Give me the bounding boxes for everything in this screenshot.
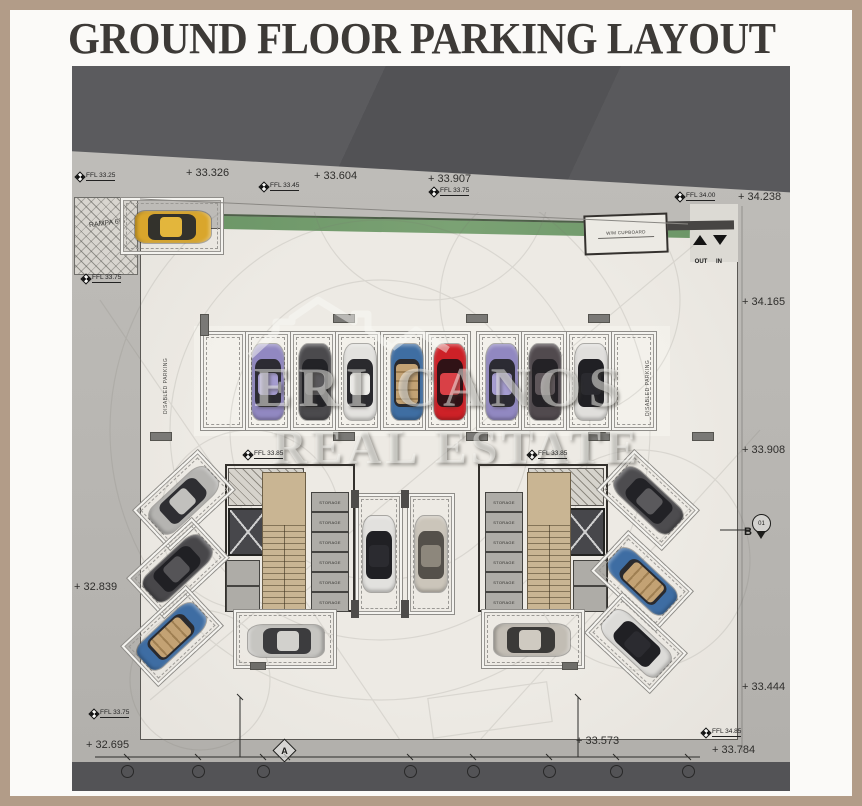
ffl-marker: FFL 33.85 bbox=[244, 450, 283, 459]
stall-divider bbox=[351, 600, 359, 618]
level-marker-icon bbox=[428, 186, 439, 197]
car-champagne bbox=[415, 516, 447, 592]
out-label: OUT bbox=[693, 259, 709, 265]
grid-bubble bbox=[404, 765, 417, 778]
grid-bubble bbox=[192, 765, 205, 778]
meter-cupboard: W/M CUPBOARD bbox=[583, 213, 668, 256]
ffl-marker: FFL 33.25 bbox=[76, 172, 115, 181]
cupboard-label: W/M CUPBOARD bbox=[606, 229, 646, 235]
grid-bubble bbox=[121, 765, 134, 778]
spot-elevation: + 33.573 bbox=[576, 735, 619, 747]
spot-elevation: + 33.907 bbox=[428, 173, 471, 185]
ffl-marker: FFL 33.45 bbox=[260, 182, 299, 191]
storage-column-right-core: STORAGE STORAGE STORAGE STORAGE STORAGE … bbox=[485, 492, 523, 612]
storage-cell: STORAGE bbox=[311, 552, 349, 572]
parking-stall-disabled bbox=[201, 332, 245, 430]
level-marker-icon bbox=[674, 191, 685, 202]
grid-bubble bbox=[257, 765, 270, 778]
spot-elevation: + 33.604 bbox=[314, 170, 357, 182]
column bbox=[333, 314, 355, 323]
wheel-stop bbox=[562, 662, 578, 670]
storage-cell: STORAGE bbox=[311, 532, 349, 552]
grid-bubble bbox=[467, 765, 480, 778]
car-white-black-roof bbox=[363, 516, 395, 592]
stall-divider bbox=[351, 490, 359, 508]
page-title: GROUND FLOOR PARKING LAYOUT bbox=[68, 12, 788, 64]
storage-cell: STORAGE bbox=[311, 592, 349, 612]
ffl-marker: FFL 34.00 bbox=[676, 192, 715, 201]
site-boundary-bottom bbox=[72, 762, 790, 791]
spot-elevation: + 33.784 bbox=[712, 744, 755, 756]
level-marker-icon bbox=[80, 273, 91, 284]
spot-elevation: + 32.695 bbox=[86, 739, 129, 751]
column bbox=[588, 314, 610, 323]
stall-divider bbox=[401, 600, 409, 618]
watermark-line1: ERI CANOS bbox=[254, 356, 627, 420]
storage-cell: STORAGE bbox=[311, 492, 349, 512]
level-marker-icon bbox=[526, 449, 537, 460]
wheel-stop bbox=[250, 662, 266, 670]
stall-divider bbox=[401, 490, 409, 508]
grid-bubble bbox=[682, 765, 695, 778]
elevator-right bbox=[565, 508, 605, 556]
disabled-parking-label-right: DISABLED PARKING bbox=[645, 348, 653, 428]
level-marker-icon bbox=[258, 181, 269, 192]
parking-layout-sheet: GROUND FLOOR PARKING LAYOUT RAMPA 6% W/M… bbox=[0, 0, 862, 806]
column bbox=[200, 314, 209, 336]
level-marker-icon bbox=[74, 171, 85, 182]
spot-elevation: + 33.908 bbox=[742, 444, 785, 456]
spot-elevation: + 34.238 bbox=[738, 191, 781, 203]
level-marker-icon bbox=[242, 449, 253, 460]
storage-cell bbox=[226, 560, 260, 586]
storage-cell: STORAGE bbox=[485, 572, 523, 592]
storage-column-left-core: STORAGE STORAGE STORAGE STORAGE STORAGE … bbox=[311, 492, 349, 612]
in-label: IN bbox=[711, 259, 727, 265]
detail-bubble-01: 01 bbox=[752, 514, 771, 533]
car-silver bbox=[248, 625, 324, 657]
storage-cell: STORAGE bbox=[311, 512, 349, 532]
section-marker-b: B bbox=[744, 526, 752, 538]
ffl-marker: FFL 33.75 bbox=[90, 709, 129, 718]
grid-bubble bbox=[610, 765, 623, 778]
column bbox=[150, 432, 172, 441]
ffl-marker: FFL 33.85 bbox=[528, 450, 567, 459]
staircase-left bbox=[262, 472, 306, 612]
ffl-marker: FFL 33.75 bbox=[430, 187, 469, 196]
level-marker-icon bbox=[88, 708, 99, 719]
watermark-line2: REAL ESTATE bbox=[272, 420, 641, 475]
storage-cells-left bbox=[226, 560, 260, 612]
out-arrow-icon bbox=[693, 235, 707, 245]
storage-cell bbox=[573, 586, 607, 612]
column bbox=[466, 314, 488, 323]
staircase-right bbox=[527, 472, 571, 612]
spot-elevation: + 34.165 bbox=[742, 296, 785, 308]
storage-cell: STORAGE bbox=[485, 532, 523, 552]
ffl-marker: FFL 34.85 bbox=[702, 728, 741, 737]
spot-elevation: + 32.839 bbox=[74, 581, 117, 593]
storage-cell: STORAGE bbox=[485, 512, 523, 532]
entrance-direction: OUTIN bbox=[688, 232, 732, 268]
level-marker-icon bbox=[700, 727, 711, 738]
storage-cell: STORAGE bbox=[485, 492, 523, 512]
storage-cell: STORAGE bbox=[311, 572, 349, 592]
column bbox=[692, 432, 714, 441]
cupboard-divider bbox=[598, 236, 654, 239]
disabled-parking-label-left: DISABLED PARKING bbox=[163, 346, 171, 426]
storage-cell: STORAGE bbox=[485, 592, 523, 612]
storage-cell bbox=[226, 586, 260, 612]
car-silver bbox=[494, 624, 570, 656]
grid-bubble bbox=[543, 765, 556, 778]
car-yellow bbox=[135, 211, 211, 243]
ffl-marker: FFL 33.75 bbox=[82, 274, 121, 283]
storage-cell: STORAGE bbox=[485, 552, 523, 572]
spot-elevation: + 33.444 bbox=[742, 681, 785, 693]
in-arrow-icon bbox=[713, 235, 727, 245]
spot-elevation: + 33.326 bbox=[186, 167, 229, 179]
